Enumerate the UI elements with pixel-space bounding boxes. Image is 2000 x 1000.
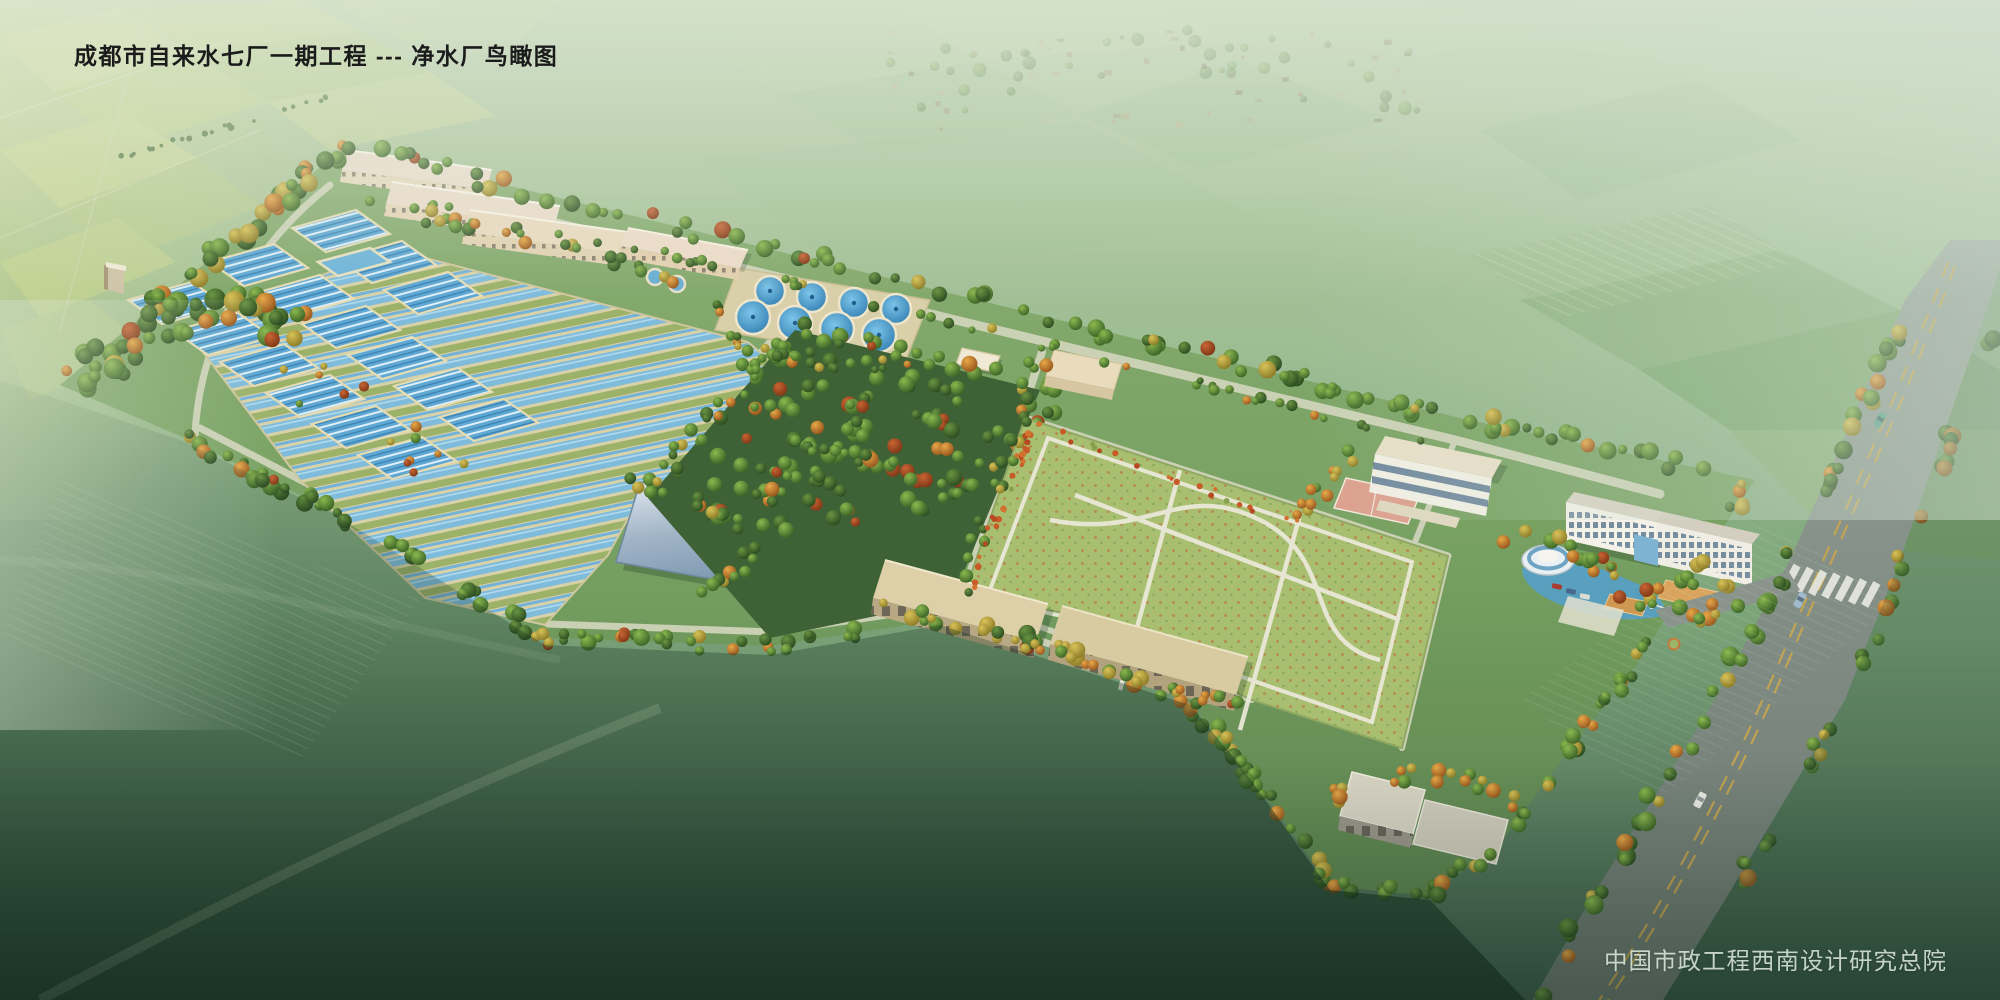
design-institute-credit: 中国市政工程西南设计研究总院 [1604, 942, 1947, 976]
page-title: 成都市自来水七厂一期工程 --- 净水厂鸟瞰图 [74, 37, 558, 71]
aerial-rendering: 成都市自来水七厂一期工程 --- 净水厂鸟瞰图 中国市政工程西南设计研究总院 [0, 0, 2000, 1000]
rendering-canvas [0, 0, 2000, 1000]
